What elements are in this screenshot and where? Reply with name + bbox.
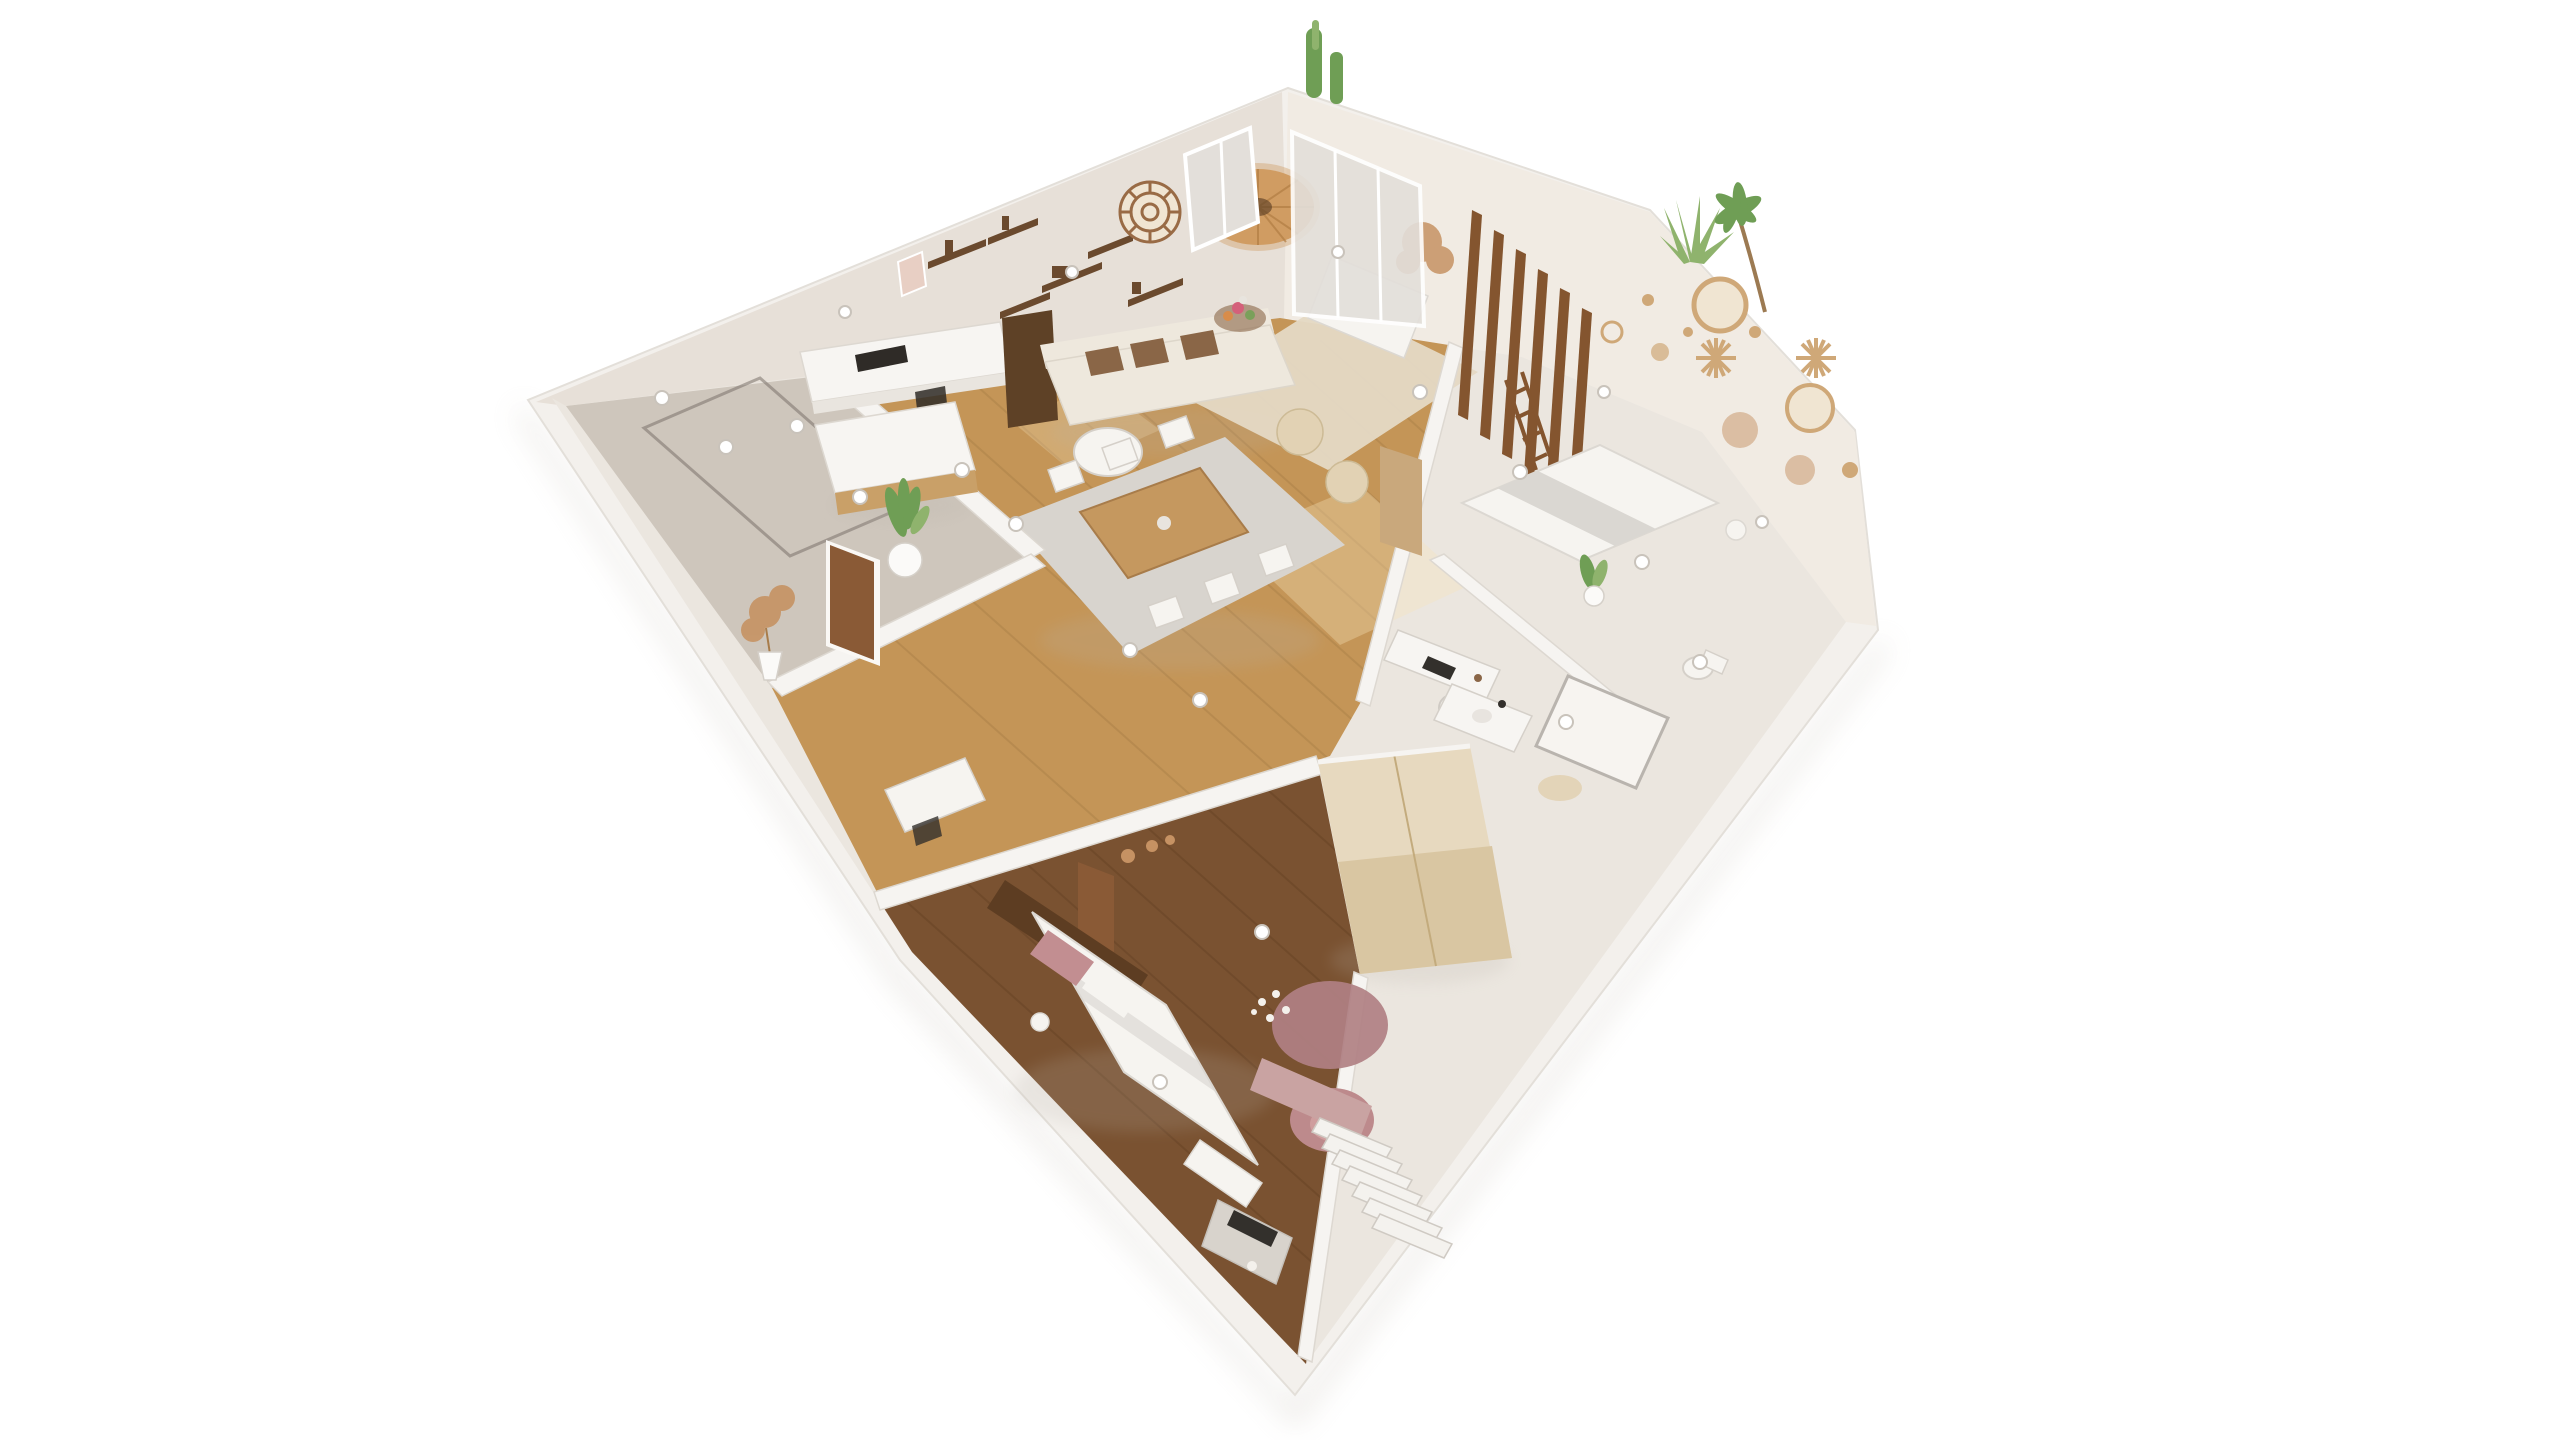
render-canvas	[0, 0, 2560, 1440]
desk-lamp	[1474, 674, 1482, 682]
floorplan-render	[0, 0, 2560, 1440]
kitchen-plant-pot	[888, 543, 922, 577]
round-pink-rug	[1272, 981, 1388, 1069]
sink	[1472, 709, 1492, 723]
hall-door-tan	[1380, 446, 1422, 556]
starburst-basket-left	[1696, 338, 1736, 378]
bed2-side-table	[1726, 520, 1746, 540]
bath-mat	[1538, 775, 1582, 801]
starburst-basket-right	[1796, 338, 1836, 378]
cactus-plant	[1306, 20, 1343, 104]
front-door	[826, 540, 880, 666]
table-centerpiece	[1157, 516, 1171, 530]
vanity-accessory	[1498, 700, 1506, 708]
bedside-table	[1031, 1013, 1049, 1031]
mandala-wall-decor	[1120, 182, 1180, 242]
